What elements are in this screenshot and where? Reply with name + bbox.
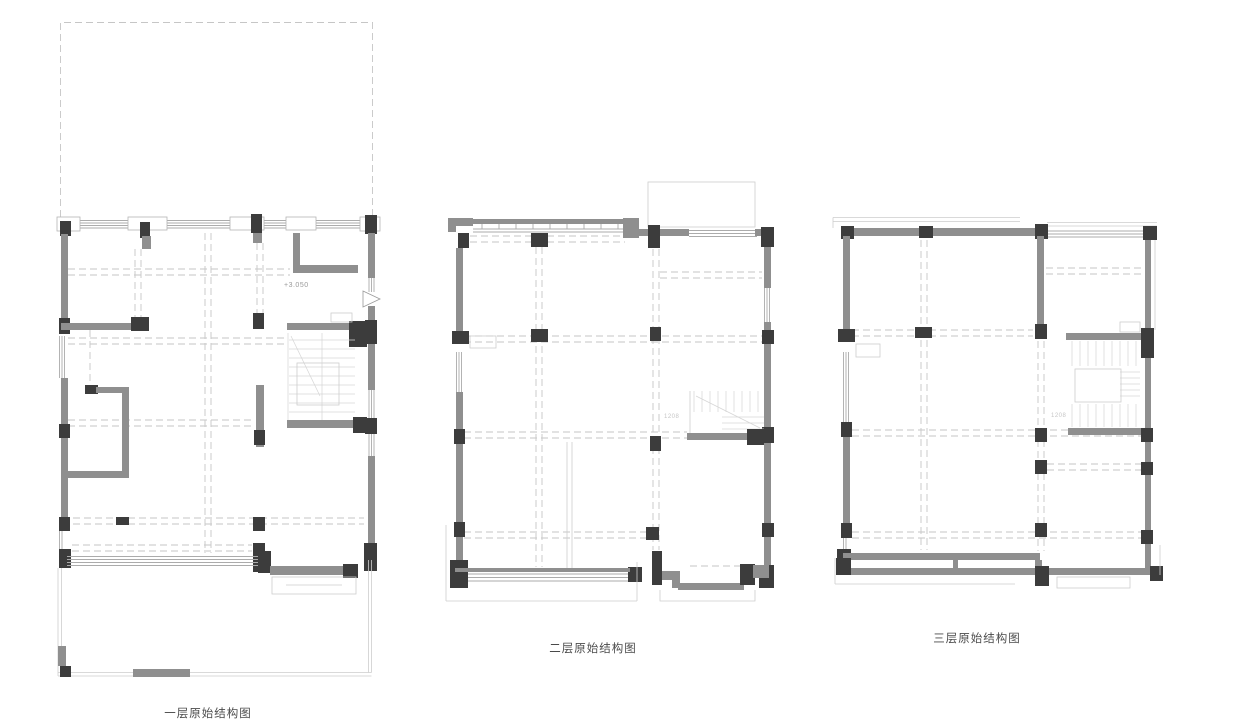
floor2-stair-dim-annotation: 1208 bbox=[664, 414, 679, 420]
floor3-stair bbox=[1066, 322, 1145, 435]
floor1-top-wall bbox=[57, 214, 380, 249]
floor3-right-wall bbox=[1141, 240, 1155, 570]
floor2-stair bbox=[687, 391, 764, 445]
floor3-bottom-walls bbox=[836, 553, 1163, 586]
floor1-mid-walls bbox=[61, 313, 367, 347]
floor2-bottom-walls bbox=[455, 564, 769, 590]
floor2-top-wall bbox=[448, 218, 774, 248]
floor3-plan-drawing bbox=[825, 210, 1165, 605]
floor1-roof-outline bbox=[61, 23, 373, 218]
floor1-bath-walls bbox=[67, 385, 129, 478]
floor2-plan-drawing bbox=[440, 175, 785, 615]
floor1-caption: 一层原始结构图 bbox=[138, 705, 278, 721]
door-swing-icon bbox=[856, 344, 880, 357]
floor1-level-annotation: +3.050 bbox=[284, 282, 309, 289]
floor3-caption: 三层原始结构图 bbox=[907, 630, 1047, 646]
floor3-beam-lines bbox=[852, 240, 1143, 551]
floor2-caption: 二层原始结构图 bbox=[523, 640, 663, 656]
floor3-left-wall bbox=[837, 236, 880, 566]
floor3-stair-dim-annotation: 1208 bbox=[1051, 413, 1066, 419]
floor1-courtyard-outline bbox=[58, 560, 372, 677]
floor2-beam-lines bbox=[464, 236, 762, 568]
floor1-bottom-walls bbox=[67, 517, 358, 594]
floor2-left-wall bbox=[450, 248, 496, 588]
entry-arrow-icon bbox=[363, 291, 380, 307]
drawing-sheet: +3.050 1208 1208 一层原始结构图 二层原始结构图 三层原始结构图 bbox=[0, 0, 1259, 727]
floor1-center-wall bbox=[253, 385, 265, 572]
door-swing-icon bbox=[331, 313, 352, 322]
floor3-interior-wall bbox=[915, 236, 1047, 537]
floor1-left-wall bbox=[59, 234, 71, 568]
floor1-plan-drawing bbox=[50, 10, 385, 695]
door-swing-icon bbox=[1120, 322, 1140, 332]
floor1-stair bbox=[287, 333, 367, 433]
floor3-terrace-outline bbox=[835, 545, 1160, 588]
floor2-right-wall bbox=[759, 247, 774, 588]
floor3-roof-outline bbox=[833, 218, 1157, 229]
floor2-canopy-outline bbox=[648, 182, 755, 227]
